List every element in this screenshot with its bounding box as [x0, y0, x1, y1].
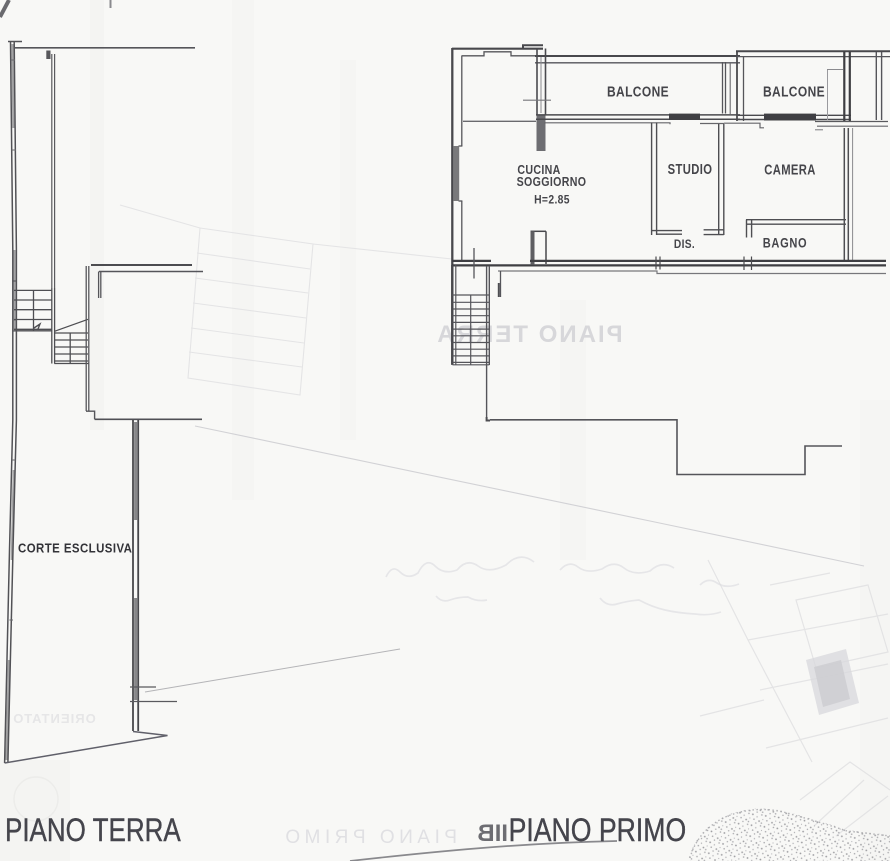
- svg-text:PIANO PRIMO: PIANO PRIMO: [281, 827, 457, 848]
- svg-text:PIANO TERRA: PIANO TERRA: [5, 812, 181, 848]
- svg-text:H=2.85: H=2.85: [534, 194, 570, 207]
- svg-text:BALCONE: BALCONE: [763, 83, 825, 100]
- svg-text:PIANO PRIMO: PIANO PRIMO: [509, 813, 687, 849]
- svg-text:DIS.: DIS.: [674, 238, 695, 251]
- svg-text:BALCONE: BALCONE: [607, 83, 669, 100]
- svg-text:PIANO TERRA: PIANO TERRA: [435, 321, 622, 348]
- svg-text:CORTE ESCLUSIVA: CORTE ESCLUSIVA: [18, 541, 132, 556]
- svg-text:BAGNO: BAGNO: [763, 235, 807, 250]
- svg-text:ORIENTATO: ORIENTATO: [12, 711, 95, 726]
- svg-text:CAMERA: CAMERA: [764, 161, 816, 178]
- svg-text:IIB: IIB: [477, 820, 508, 847]
- svg-text:SOGGIORNO: SOGGIORNO: [517, 175, 587, 189]
- svg-text:STUDIO: STUDIO: [668, 160, 713, 177]
